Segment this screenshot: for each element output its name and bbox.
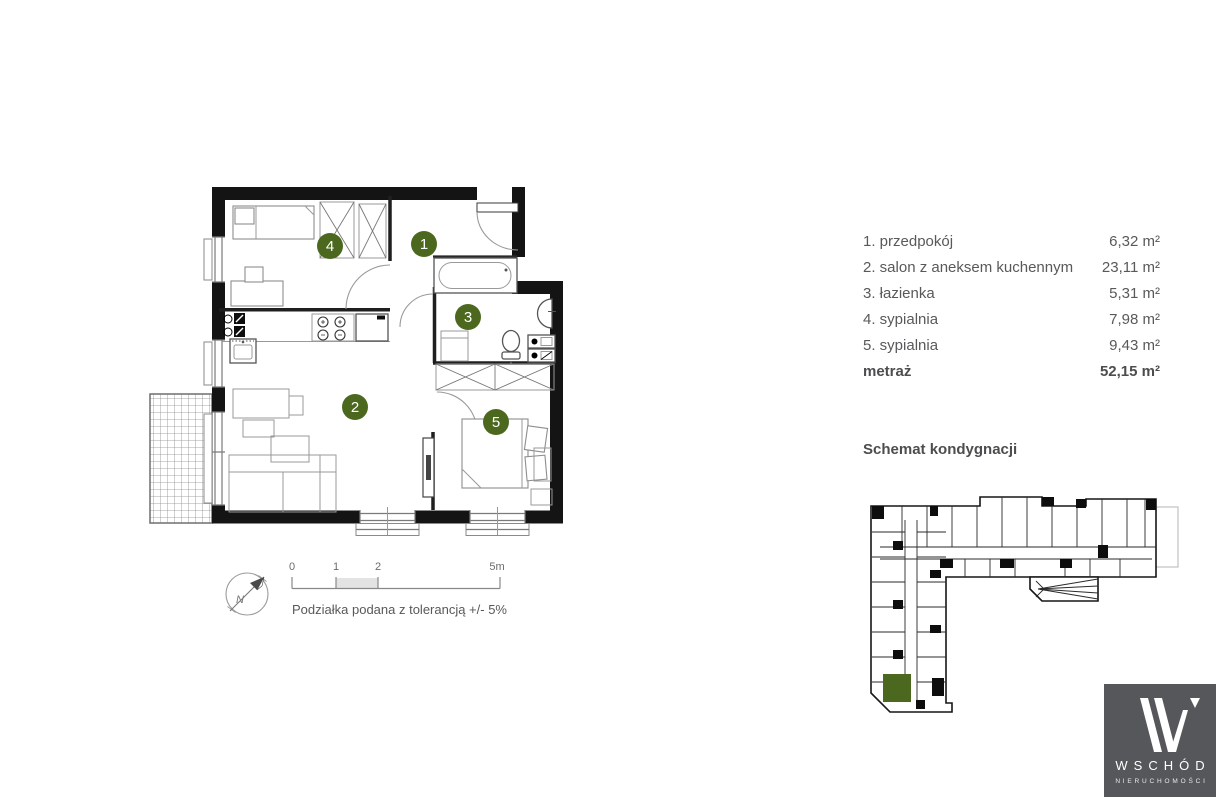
bathroom-fixtures	[434, 258, 556, 364]
wschod-logo-icon	[1112, 694, 1208, 756]
wardrobe-icon	[436, 364, 554, 390]
schematic-title: Schemat kondygnacji	[863, 441, 1017, 458]
legend-total-row: metraż 52,15 m²	[863, 358, 1160, 384]
kitchen-area	[222, 313, 390, 363]
wschod-logo: WSCHÓD NIERUCHOMOŚCI	[1104, 684, 1216, 797]
legend-row: 1. przedpokój 6,32 m²	[863, 228, 1160, 254]
bathtub-icon	[434, 258, 517, 293]
legend-room-area: 9,43 m²	[1109, 337, 1160, 354]
kitchen-cabinet	[356, 314, 388, 341]
entry-door	[477, 203, 518, 250]
shower-cabinet	[441, 331, 468, 361]
legend-total-label: metraż	[863, 363, 911, 380]
area-legend: 1. przedpokój 6,32 m² 2. salon z aneksem…	[863, 228, 1160, 384]
legend-row: 3. łazienka 5,31 m²	[863, 280, 1160, 306]
legend-room-label: 4. sypialnia	[863, 311, 938, 328]
compass-and-scale: N 0 1 2 5m Podziałka podana z tolerancją…	[140, 545, 540, 645]
scale-tick-1: 1	[333, 561, 339, 573]
room-label-4: 4	[317, 233, 343, 259]
schematic-outline	[871, 497, 1156, 712]
scale-bar: 0 1 2 5m	[289, 561, 505, 589]
compass-icon: N	[226, 573, 268, 615]
legend-row: 5. sypialnia 9,43 m²	[863, 332, 1160, 358]
legend-row: 2. salon z aneksem kuchennym 23,11 m²	[863, 254, 1160, 280]
schematic-annex	[1156, 507, 1178, 567]
svg-text:2: 2	[351, 399, 359, 416]
svg-text:5: 5	[492, 414, 500, 431]
svg-text:1: 1	[420, 236, 428, 253]
legend-room-label: 2. salon z aneksem kuchennym	[863, 259, 1073, 276]
tv-cabinet-icon	[423, 438, 434, 497]
stove-icon	[312, 314, 354, 341]
legend-total-area: 52,15 m²	[1100, 363, 1160, 380]
svg-text:4: 4	[326, 238, 334, 255]
floor-plan: 1 2 3 4 5	[140, 178, 580, 543]
svg-text:3: 3	[464, 309, 472, 326]
legend-room-area: 7,98 m²	[1109, 311, 1160, 328]
room-label-1: 1	[411, 231, 437, 257]
schematic-highlighted-unit	[883, 674, 911, 702]
schematic-stairs	[1030, 577, 1098, 601]
sofa-icon	[229, 455, 336, 512]
logo-brand-subtitle: NIERUCHOMOŚCI	[1115, 778, 1207, 785]
legend-room-area: 6,32 m²	[1109, 233, 1160, 250]
scale-tick-0: 0	[289, 561, 295, 573]
north-label: N	[236, 594, 244, 606]
legend-room-label: 1. przedpokój	[863, 233, 953, 250]
balcony-door-window	[204, 412, 225, 505]
legend-row: 4. sypialnia 7,98 m²	[863, 306, 1160, 332]
toilet-icon	[502, 331, 520, 365]
balcony	[150, 394, 212, 523]
desk-icon	[231, 267, 283, 306]
legend-room-label: 3. łazienka	[863, 285, 935, 302]
bed-single-icon	[233, 206, 314, 239]
window-room2-bottom	[356, 507, 419, 536]
kitchen-sink-unit	[230, 339, 256, 363]
logo-brand-name: WSCHÓD	[1115, 758, 1210, 773]
apartment-plan-page: 1 2 3 4 5 N 0 1 2 5m P	[0, 0, 1216, 797]
sideboard-icon	[233, 389, 303, 437]
room-label-5: 5	[483, 409, 509, 435]
scale-tick-5m: 5m	[489, 561, 504, 573]
kitchen-sink-symbols	[224, 313, 245, 337]
window-room2-left	[204, 340, 225, 387]
window-room5-bottom	[466, 507, 529, 536]
coffee-table-icon	[271, 436, 309, 462]
room-label-2: 2	[342, 394, 368, 420]
furniture-room2	[229, 389, 434, 512]
furniture-room4	[231, 202, 386, 306]
washer-dryer-icon	[528, 335, 555, 362]
legend-room-area: 23,11 m²	[1102, 259, 1160, 276]
legend-room-label: 5. sypialnia	[863, 337, 938, 354]
legend-room-area: 5,31 m²	[1109, 285, 1160, 302]
room-label-3: 3	[455, 304, 481, 330]
window-room4	[204, 237, 225, 282]
scale-tick-2: 2	[375, 561, 381, 573]
scale-tolerance-note: Podziałka podana z tolerancją +/- 5%	[292, 602, 507, 617]
